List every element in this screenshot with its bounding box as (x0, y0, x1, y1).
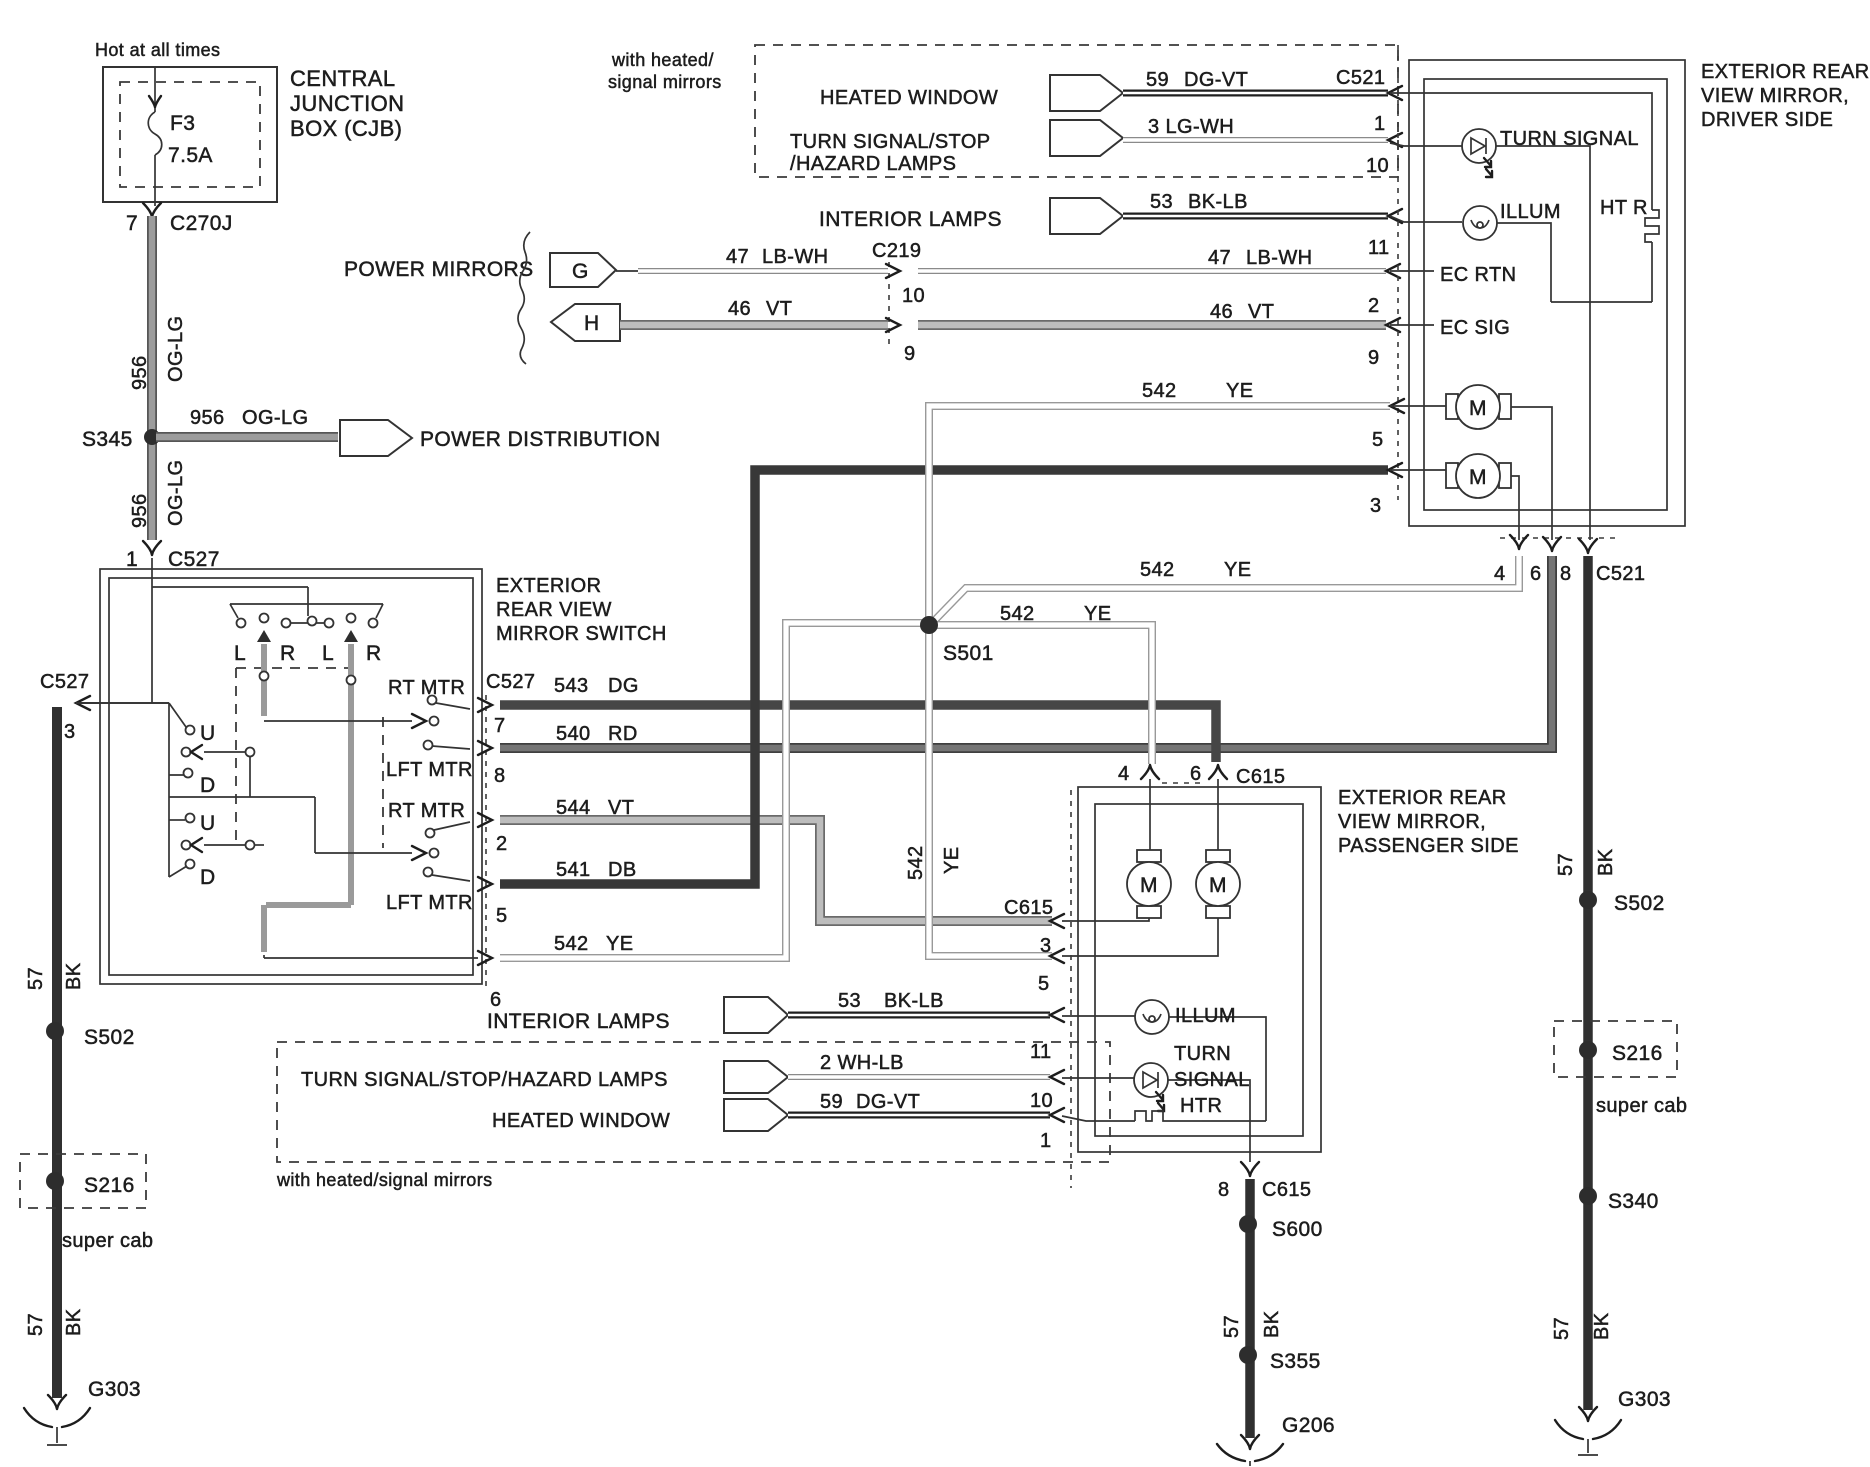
svg-text:956: 956 (129, 355, 151, 390)
svg-text:2 WH-LB: 2 WH-LB (820, 1052, 904, 1074)
svg-text:S501: S501 (943, 642, 994, 665)
svg-text:HTR: HTR (1180, 1095, 1222, 1117)
svg-text:3: 3 (1370, 495, 1382, 517)
svg-text:SIGNAL: SIGNAL (1174, 1069, 1250, 1091)
svg-text:53: 53 (838, 990, 861, 1012)
svg-text:M: M (1209, 874, 1227, 897)
svg-text:BK: BK (1261, 1310, 1283, 1338)
svg-text:VT: VT (608, 797, 634, 819)
svg-text:LFT MTR: LFT MTR (386, 759, 473, 781)
svg-text:with heated/signal mirrors: with heated/signal mirrors (276, 1170, 492, 1190)
svg-text:YE: YE (606, 933, 633, 955)
svg-text:DB: DB (608, 859, 637, 881)
svg-text:7: 7 (126, 212, 138, 235)
svg-text:DG-VT: DG-VT (1184, 69, 1248, 91)
svg-text:46: 46 (1210, 301, 1233, 323)
svg-text:OG-LG: OG-LG (165, 460, 187, 526)
svg-text:G206: G206 (1282, 1414, 1335, 1437)
svg-text:G: G (572, 260, 589, 283)
svg-text:L: L (322, 642, 334, 665)
svg-text:57: 57 (1555, 853, 1577, 876)
svg-text:POWER DISTRIBUTION: POWER DISTRIBUTION (420, 428, 661, 451)
svg-text:YE: YE (1224, 559, 1251, 581)
svg-text:TURN SIGNAL: TURN SIGNAL (1500, 128, 1639, 150)
svg-text:super cab: super cab (1596, 1095, 1687, 1117)
svg-text:57: 57 (1221, 1315, 1243, 1338)
svg-text:REAR VIEW: REAR VIEW (496, 599, 612, 621)
svg-text:59: 59 (1146, 69, 1169, 91)
svg-text:HT R: HT R (1600, 197, 1648, 219)
svg-text:8: 8 (1560, 563, 1572, 585)
svg-text:G303: G303 (1618, 1388, 1671, 1411)
svg-text:EXTERIOR REAR: EXTERIOR REAR (1338, 787, 1507, 809)
svg-text:S345: S345 (82, 428, 133, 451)
svg-text:S600: S600 (1272, 1218, 1323, 1241)
svg-text:H: H (584, 312, 600, 335)
svg-text:YE: YE (1084, 603, 1111, 625)
svg-text:4: 4 (1118, 763, 1130, 785)
svg-text:LFT MTR: LFT MTR (386, 892, 473, 914)
svg-text:TURN SIGNAL/STOP: TURN SIGNAL/STOP (790, 131, 991, 153)
svg-text:DG: DG (608, 675, 639, 697)
svg-text:VIEW MIRROR,: VIEW MIRROR, (1701, 85, 1849, 107)
svg-text:VT: VT (1248, 301, 1274, 323)
svg-text:544: 544 (556, 797, 591, 819)
svg-text:542: 542 (905, 845, 927, 880)
svg-text:D: D (200, 774, 216, 797)
svg-text:542: 542 (554, 933, 589, 955)
svg-text:M: M (1469, 466, 1487, 489)
svg-text:7.5A: 7.5A (168, 144, 213, 167)
svg-text:C615: C615 (1004, 897, 1053, 919)
svg-text:11: 11 (1030, 1041, 1052, 1063)
svg-text:POWER MIRRORS: POWER MIRRORS (344, 258, 534, 281)
svg-text:10: 10 (1366, 155, 1389, 177)
svg-text:CENTRAL: CENTRAL (290, 66, 396, 91)
svg-text:YE: YE (1226, 380, 1253, 402)
svg-text:BK-LB: BK-LB (884, 990, 944, 1012)
svg-text:956: 956 (190, 407, 225, 429)
svg-text:R: R (280, 642, 296, 665)
svg-text:EXTERIOR: EXTERIOR (496, 575, 601, 597)
svg-text:PASSENGER SIDE: PASSENGER SIDE (1338, 835, 1519, 857)
svg-text:LB-WH: LB-WH (762, 246, 828, 268)
svg-text:3 LG-WH: 3 LG-WH (1148, 116, 1234, 138)
svg-text:Hot at all times: Hot at all times (95, 40, 220, 60)
svg-text:S340: S340 (1608, 1190, 1659, 1213)
svg-text:5: 5 (1038, 973, 1050, 995)
svg-text:F3: F3 (170, 112, 195, 135)
svg-text:C615: C615 (1236, 766, 1285, 788)
svg-text:542: 542 (1000, 603, 1035, 625)
svg-text:S216: S216 (84, 1174, 135, 1197)
svg-text:C219: C219 (872, 240, 921, 262)
svg-text:3: 3 (1040, 935, 1052, 957)
svg-text:DG-VT: DG-VT (856, 1091, 920, 1113)
svg-text:7: 7 (494, 715, 506, 737)
svg-text:RD: RD (608, 723, 638, 745)
svg-text:JUNCTION: JUNCTION (290, 91, 404, 116)
svg-text:8: 8 (494, 765, 506, 787)
svg-text:MIRROR SWITCH: MIRROR SWITCH (496, 623, 667, 645)
svg-text:2: 2 (1368, 295, 1380, 317)
svg-text:ILLUM: ILLUM (1500, 201, 1561, 223)
svg-text:super cab: super cab (62, 1230, 153, 1252)
svg-text:1: 1 (126, 548, 138, 571)
svg-text:LB-WH: LB-WH (1246, 247, 1312, 269)
svg-text:TURN SIGNAL/STOP/HAZARD LAMPS: TURN SIGNAL/STOP/HAZARD LAMPS (301, 1069, 668, 1091)
svg-text:BK: BK (63, 962, 85, 990)
svg-text:9: 9 (1368, 347, 1380, 369)
svg-text:EXTERIOR REAR: EXTERIOR REAR (1701, 61, 1870, 83)
svg-text:10: 10 (902, 285, 925, 307)
svg-text:R: R (366, 642, 382, 665)
svg-text:3: 3 (64, 721, 76, 743)
svg-text:RT MTR: RT MTR (388, 800, 465, 822)
svg-text:C527: C527 (168, 548, 220, 571)
svg-text:C615: C615 (1262, 1179, 1311, 1201)
svg-text:L: L (234, 642, 246, 665)
svg-text:C521: C521 (1596, 563, 1645, 585)
svg-text:G303: G303 (88, 1378, 141, 1401)
svg-text:53: 53 (1150, 191, 1173, 213)
svg-text:1: 1 (1040, 1130, 1052, 1152)
svg-text:C527: C527 (40, 671, 89, 693)
svg-text:956: 956 (129, 493, 151, 528)
svg-text:S502: S502 (84, 1026, 135, 1049)
svg-text:BK: BK (63, 1308, 85, 1336)
svg-text:INTERIOR LAMPS: INTERIOR LAMPS (487, 1010, 670, 1033)
svg-text:U: U (200, 722, 216, 745)
svg-text:BOX (CJB): BOX (CJB) (290, 116, 402, 141)
svg-text:BK: BK (1595, 848, 1617, 876)
svg-text:with heated/: with heated/ (611, 50, 714, 70)
svg-text:6: 6 (490, 989, 502, 1011)
svg-text:S355: S355 (1270, 1350, 1321, 1373)
svg-text:5: 5 (1372, 429, 1384, 451)
svg-text:4: 4 (1494, 563, 1506, 585)
svg-text:543: 543 (554, 675, 589, 697)
svg-text:BK: BK (1591, 1312, 1613, 1340)
svg-text:59: 59 (820, 1091, 843, 1113)
svg-text:DRIVER SIDE: DRIVER SIDE (1701, 109, 1833, 131)
svg-text:VIEW MIRROR,: VIEW MIRROR, (1338, 811, 1486, 833)
svg-text:signal mirrors: signal mirrors (608, 72, 722, 92)
svg-text:S502: S502 (1614, 892, 1665, 915)
svg-text:/HAZARD LAMPS: /HAZARD LAMPS (790, 153, 956, 175)
svg-text:VT: VT (766, 298, 792, 320)
svg-text:C527: C527 (486, 671, 535, 693)
svg-text:M: M (1140, 874, 1158, 897)
svg-text:6: 6 (1530, 563, 1542, 585)
svg-text:9: 9 (904, 343, 916, 365)
svg-text:TURN: TURN (1174, 1043, 1231, 1065)
svg-text:1: 1 (1374, 113, 1386, 135)
svg-text:EC RTN: EC RTN (1440, 264, 1516, 286)
svg-text:ILLUM: ILLUM (1175, 1005, 1236, 1027)
svg-text:M: M (1469, 397, 1487, 420)
svg-text:S216: S216 (1612, 1042, 1663, 1065)
svg-text:RT MTR: RT MTR (388, 677, 465, 699)
svg-text:47: 47 (1208, 247, 1231, 269)
svg-text:U: U (200, 812, 216, 835)
svg-text:INTERIOR LAMPS: INTERIOR LAMPS (819, 208, 1002, 231)
svg-text:OG-LG: OG-LG (165, 316, 187, 382)
svg-text:HEATED WINDOW: HEATED WINDOW (492, 1110, 670, 1132)
svg-text:HEATED WINDOW: HEATED WINDOW (820, 87, 998, 109)
svg-text:10: 10 (1030, 1090, 1053, 1112)
svg-text:5: 5 (496, 905, 508, 927)
svg-text:EC SIG: EC SIG (1440, 317, 1510, 339)
svg-text:57: 57 (1551, 1317, 1573, 1340)
svg-text:57: 57 (25, 1313, 47, 1336)
svg-text:C270J: C270J (170, 212, 233, 235)
svg-text:D: D (200, 866, 216, 889)
svg-text:6: 6 (1190, 763, 1202, 785)
svg-text:541: 541 (556, 859, 591, 881)
svg-text:542: 542 (1140, 559, 1175, 581)
svg-text:8: 8 (1218, 1179, 1230, 1201)
svg-text:540: 540 (556, 723, 591, 745)
svg-text:OG-LG: OG-LG (242, 407, 308, 429)
svg-text:47: 47 (726, 246, 749, 268)
svg-text:YE: YE (941, 847, 963, 874)
svg-text:C521: C521 (1336, 67, 1385, 89)
svg-text:BK-LB: BK-LB (1188, 191, 1248, 213)
svg-text:2: 2 (496, 833, 508, 855)
svg-text:11: 11 (1368, 237, 1390, 259)
svg-text:46: 46 (728, 298, 751, 320)
svg-text:542: 542 (1142, 380, 1177, 402)
svg-text:57: 57 (25, 967, 47, 990)
